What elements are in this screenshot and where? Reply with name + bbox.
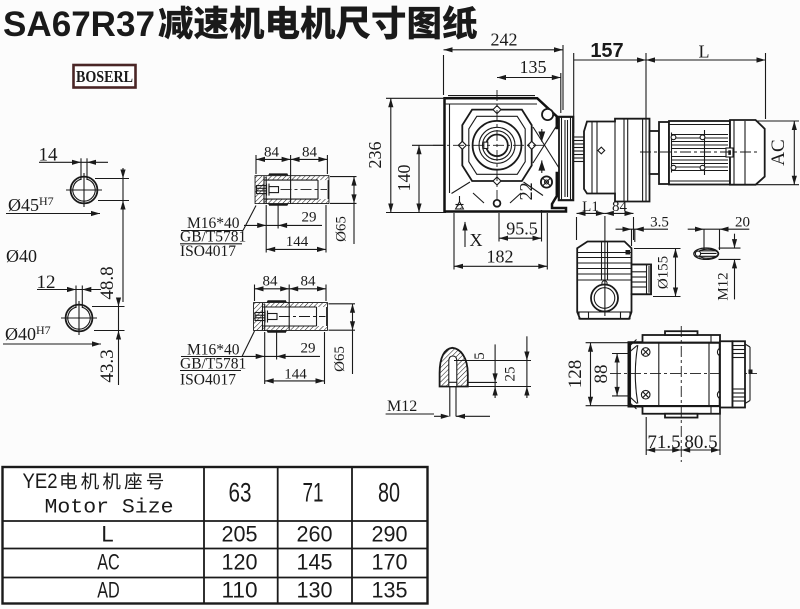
svg-text:205: 205 [222,522,258,547]
svg-text:Ø45H7: Ø45H7 [8,194,54,215]
svg-text:SA67R37: SA67R37 [3,5,155,44]
svg-text:135: 135 [520,57,547,77]
svg-text:157: 157 [590,40,623,62]
svg-text:12: 12 [37,272,56,293]
svg-text:Motor Size: Motor Size [45,497,174,520]
svg-text:AC: AC [97,550,120,575]
svg-text:22: 22 [516,182,536,200]
svg-text:88: 88 [591,365,612,384]
svg-text:ISO4017: ISO4017 [180,372,236,389]
svg-text:71.5: 71.5 [647,432,680,453]
svg-text:L: L [101,522,113,547]
svg-text:144: 144 [286,234,309,250]
svg-text:290: 290 [372,522,408,547]
svg-text:M12: M12 [716,272,732,300]
svg-text:Ø65: Ø65 [332,346,348,372]
svg-text:84: 84 [612,199,628,215]
svg-text:X: X [470,230,483,250]
svg-text:ISO4017: ISO4017 [180,243,236,260]
svg-text:14: 14 [39,145,59,166]
svg-text:80: 80 [378,478,400,508]
svg-text:Ø155: Ø155 [656,256,672,289]
svg-text:BOSERL: BOSERL [76,67,133,86]
svg-text:130: 130 [297,578,333,603]
svg-text:170: 170 [372,550,408,575]
svg-text:84: 84 [301,274,317,290]
svg-text:80.5: 80.5 [684,432,717,453]
svg-text:242: 242 [491,30,518,50]
svg-text:25: 25 [503,367,519,382]
svg-text:M12: M12 [387,398,417,415]
svg-text:110: 110 [222,578,258,603]
svg-text:Ø40: Ø40 [6,246,37,266]
svg-text:140: 140 [394,165,414,192]
svg-text:YE2: YE2 [23,470,58,493]
svg-text:29: 29 [301,341,316,357]
svg-text:Ø65: Ø65 [334,216,350,242]
svg-text:236: 236 [365,142,385,169]
svg-text:48.8: 48.8 [97,266,118,299]
svg-text:84: 84 [263,274,279,290]
svg-text:144: 144 [284,367,307,383]
svg-text:GB/T5781: GB/T5781 [180,355,246,372]
svg-text:182: 182 [487,247,514,267]
svg-text:120: 120 [222,550,258,575]
svg-text:71: 71 [303,478,324,508]
svg-text:84: 84 [302,145,318,161]
svg-text:84: 84 [264,145,280,161]
svg-text:135: 135 [372,578,408,603]
svg-text:95.5: 95.5 [506,219,538,239]
svg-text:3.5: 3.5 [650,215,669,231]
svg-text:AC: AC [768,139,789,165]
svg-text:L: L [699,42,710,62]
svg-text:Ø40H7: Ø40H7 [5,323,51,344]
svg-text:43.3: 43.3 [97,349,118,382]
svg-text:145: 145 [297,550,333,575]
svg-text:29: 29 [302,210,317,226]
svg-text:20: 20 [735,215,750,231]
svg-text:AD: AD [97,578,120,603]
svg-text:260: 260 [297,522,333,547]
svg-text:128: 128 [565,360,586,389]
svg-text:63: 63 [229,478,252,508]
svg-text:5: 5 [472,352,488,360]
svg-text:L1: L1 [582,199,599,215]
